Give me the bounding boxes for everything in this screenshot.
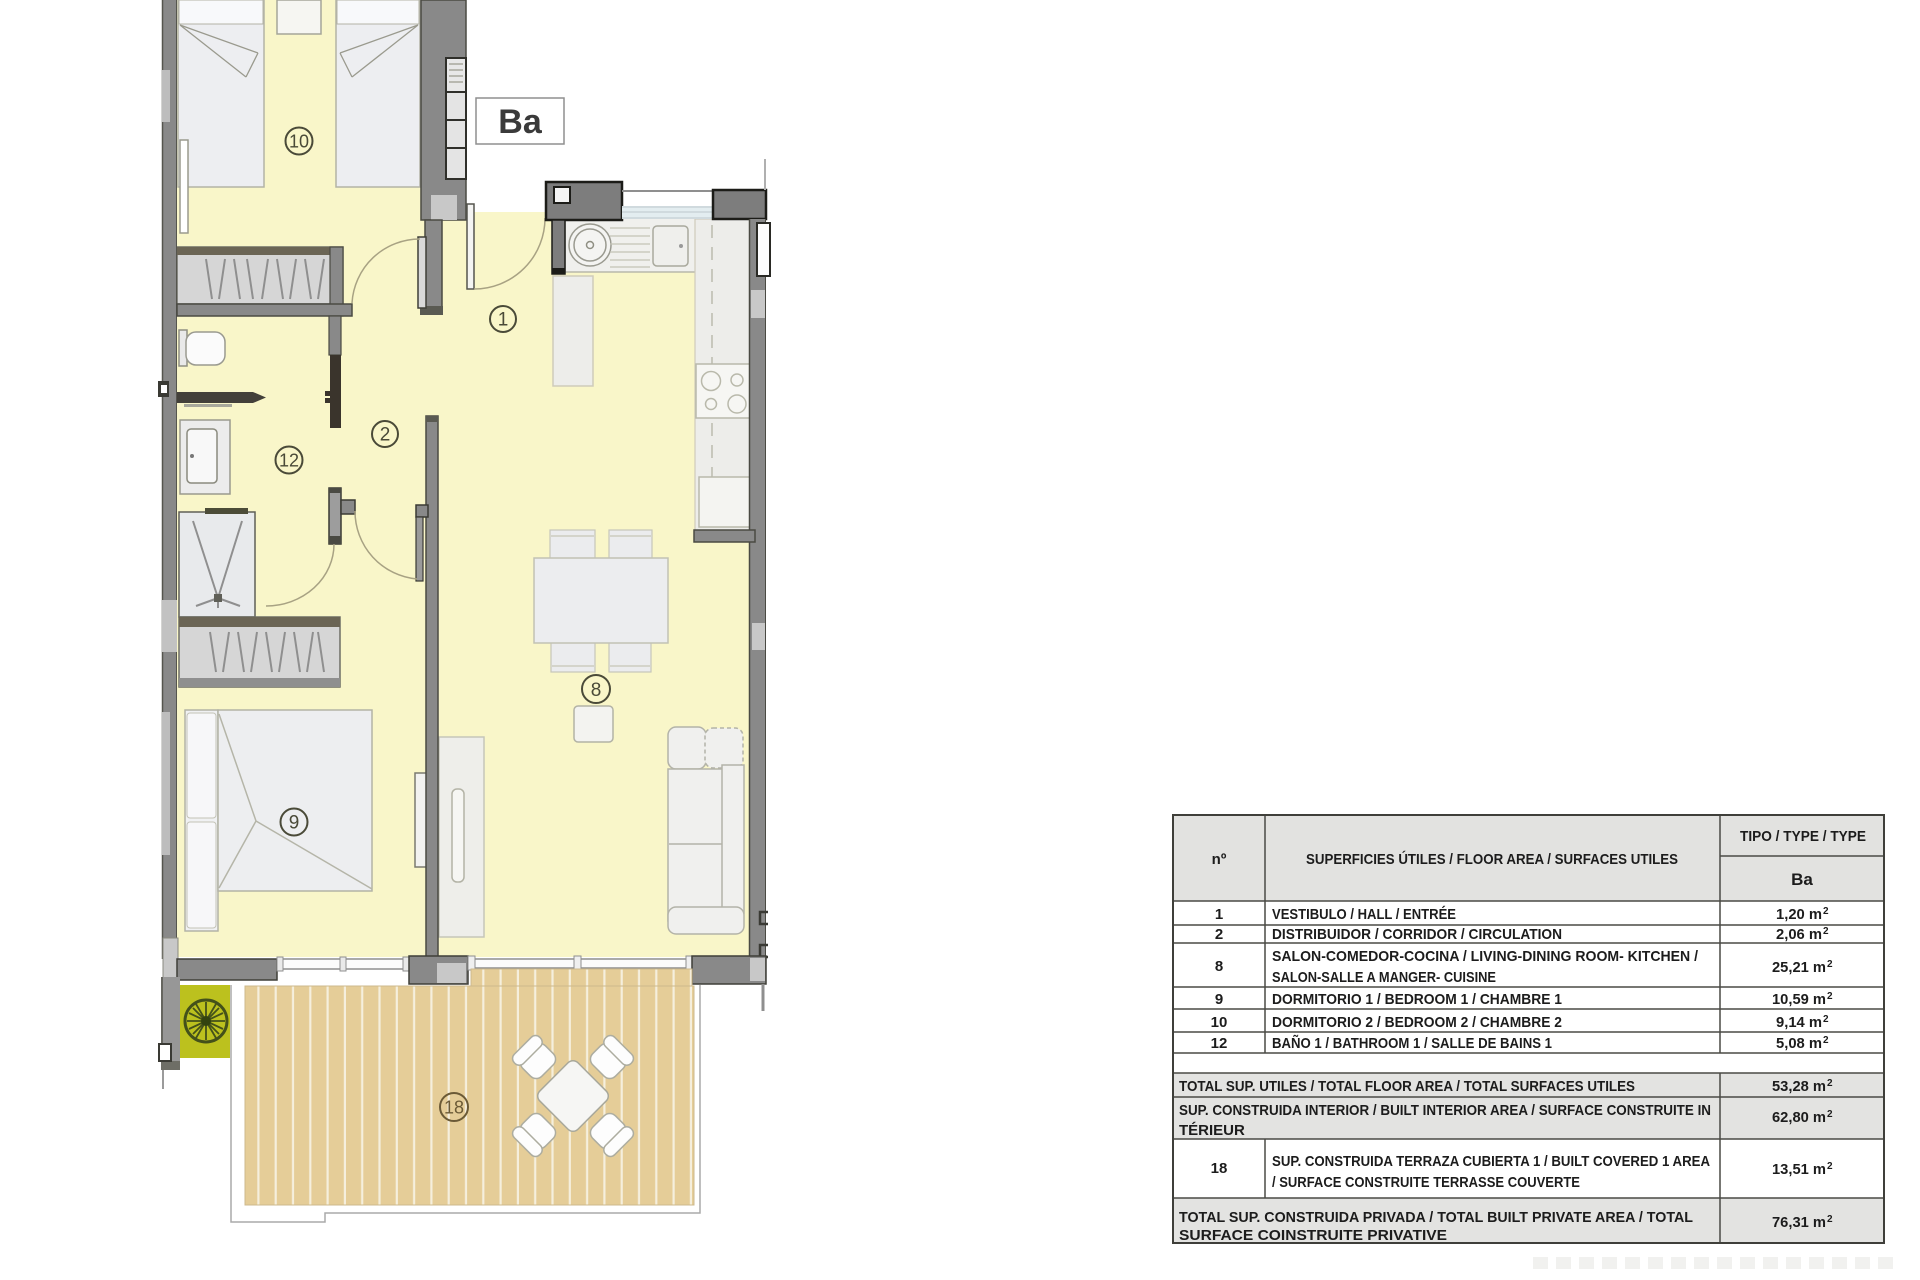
svg-text:2: 2 xyxy=(380,425,391,446)
svg-text:9,14 m: 9,14 m xyxy=(1776,1014,1822,1031)
svg-text:TÉRIEUR: TÉRIEUR xyxy=(1179,1122,1245,1139)
svg-text:SALON-SALLE A MANGER- CUISINE: SALON-SALLE A MANGER- CUISINE xyxy=(1272,969,1496,986)
svg-text:12: 12 xyxy=(279,451,299,471)
svg-text:13,51 m: 13,51 m xyxy=(1772,1161,1826,1178)
svg-text:2: 2 xyxy=(1827,1214,1833,1225)
svg-text:2: 2 xyxy=(1823,1014,1829,1025)
svg-text:2: 2 xyxy=(1823,926,1829,937)
svg-text:76,31 m: 76,31 m xyxy=(1772,1214,1826,1231)
svg-text:nº: nº xyxy=(1212,851,1227,868)
svg-text:TOTAL SUP. UTILES / TOTAL FLOO: TOTAL SUP. UTILES / TOTAL FLOOR AREA / T… xyxy=(1179,1078,1635,1095)
svg-text:2: 2 xyxy=(1827,1109,1833,1120)
svg-text:2,06 m: 2,06 m xyxy=(1776,926,1822,943)
svg-text:TOTAL SUP. CONSTRUIDA PRIVADA: TOTAL SUP. CONSTRUIDA PRIVADA / TOTAL BU… xyxy=(1179,1209,1693,1226)
svg-text:/ SURFACE CONSTRUITE TERRASSE: / SURFACE CONSTRUITE TERRASSE COUVERTE xyxy=(1272,1174,1580,1191)
svg-text:DORMITORIO 1 / BEDROOM 1 / CHA: DORMITORIO 1 / BEDROOM 1 / CHAMBRE 1 xyxy=(1272,991,1562,1008)
svg-text:10: 10 xyxy=(1211,1014,1228,1031)
svg-text:2: 2 xyxy=(1827,991,1833,1002)
svg-text:8: 8 xyxy=(1215,958,1223,975)
svg-text:2: 2 xyxy=(1823,906,1829,917)
svg-text:TIPO / TYPE / TYPE: TIPO / TYPE / TYPE xyxy=(1740,828,1866,845)
svg-text:12: 12 xyxy=(1211,1035,1228,1052)
svg-text:DORMITORIO 2 / BEDROOM 2 / CHA: DORMITORIO 2 / BEDROOM 2 / CHAMBRE 2 xyxy=(1272,1014,1562,1031)
svg-text:2: 2 xyxy=(1827,959,1833,970)
svg-text:10: 10 xyxy=(289,132,309,152)
svg-text:2: 2 xyxy=(1827,1078,1833,1089)
svg-text:SURFACE COINSTRUITE PRIVATIVE: SURFACE COINSTRUITE PRIVATIVE xyxy=(1179,1227,1447,1244)
svg-text:25,21 m: 25,21 m xyxy=(1772,959,1826,976)
svg-text:5,08 m: 5,08 m xyxy=(1776,1035,1822,1052)
svg-text:VESTIBULO / HALL / ENTRÉE: VESTIBULO / HALL / ENTRÉE xyxy=(1272,906,1456,923)
svg-text:2: 2 xyxy=(1827,1161,1833,1172)
svg-text:SALON-COMEDOR-COCINA / LIVING-: SALON-COMEDOR-COCINA / LIVING-DINING ROO… xyxy=(1272,948,1699,965)
svg-text:DISTRIBUIDOR / CORRIDOR / CIRC: DISTRIBUIDOR / CORRIDOR / CIRCULATION xyxy=(1272,926,1562,943)
svg-text:BAÑO 1 / BATHROOM 1 / SALLE DE: BAÑO 1 / BATHROOM 1 / SALLE DE BAINS 1 xyxy=(1272,1034,1552,1052)
svg-text:62,80 m: 62,80 m xyxy=(1772,1109,1826,1126)
svg-text:1: 1 xyxy=(498,310,509,331)
svg-text:9: 9 xyxy=(289,813,300,834)
svg-text:1: 1 xyxy=(1215,906,1223,923)
svg-text:Ba: Ba xyxy=(498,103,543,141)
svg-text:10,59 m: 10,59 m xyxy=(1772,991,1826,1008)
svg-text:1,20 m: 1,20 m xyxy=(1776,906,1822,923)
svg-text:2: 2 xyxy=(1823,1035,1829,1046)
svg-text:53,28 m: 53,28 m xyxy=(1772,1078,1826,1095)
svg-text:Ba: Ba xyxy=(1791,870,1813,889)
svg-text:18: 18 xyxy=(444,1098,464,1118)
svg-text:SUP. CONSTRUIDA TERRAZA CUBIER: SUP. CONSTRUIDA TERRAZA CUBIERTA 1 / BUI… xyxy=(1272,1153,1710,1170)
svg-text:9: 9 xyxy=(1215,991,1223,1008)
svg-text:8: 8 xyxy=(591,680,602,701)
svg-text:18: 18 xyxy=(1211,1160,1228,1177)
svg-text:SUPERFICIES ÚTILES / FLOOR ARE: SUPERFICIES ÚTILES / FLOOR AREA / SURFAC… xyxy=(1306,850,1678,868)
svg-text:2: 2 xyxy=(1215,926,1223,943)
svg-text:SUP. CONSTRUIDA INTERIOR / BUI: SUP. CONSTRUIDA INTERIOR / BUILT INTERIO… xyxy=(1179,1102,1711,1119)
